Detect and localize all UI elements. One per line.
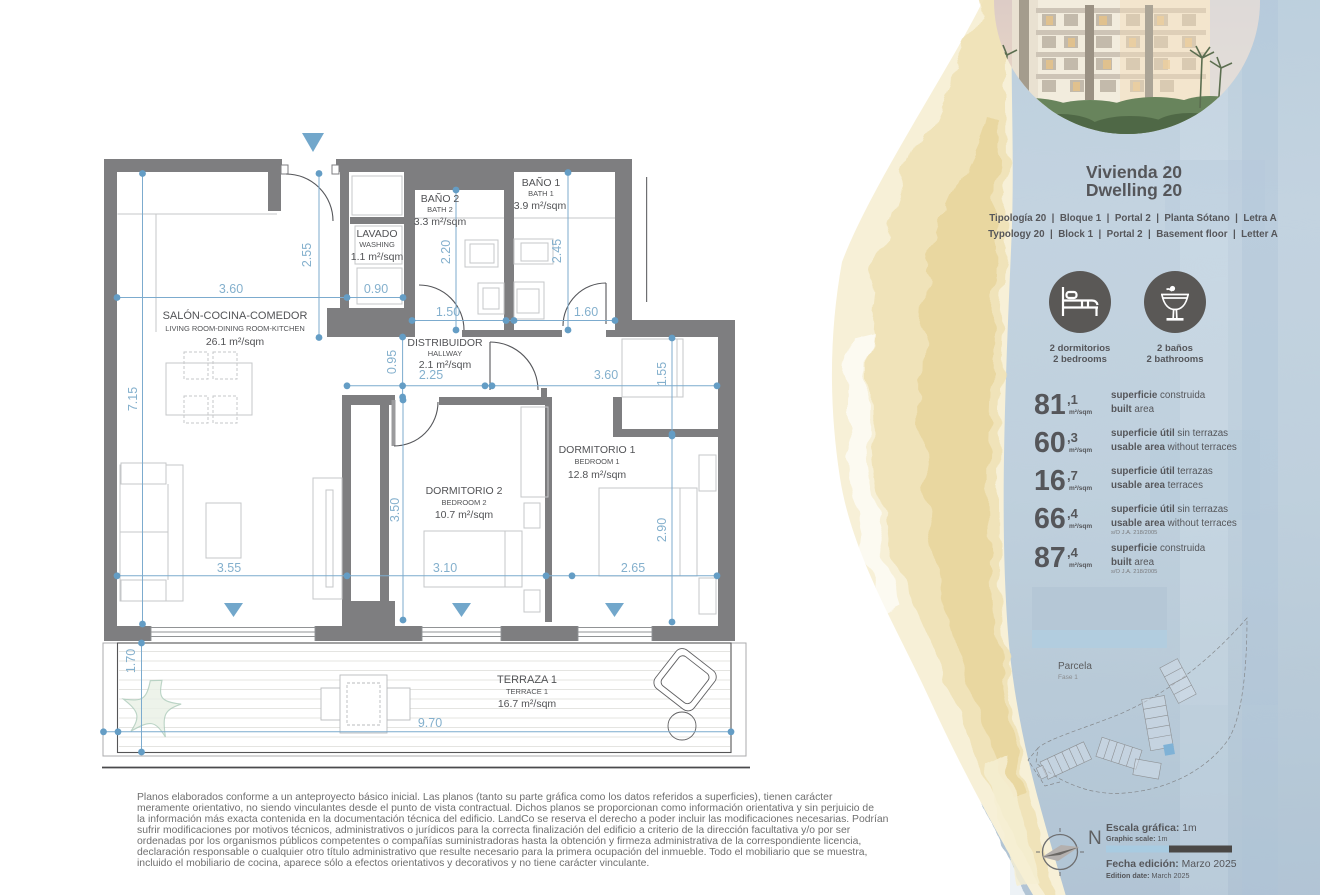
svg-text:BEDROOM 2: BEDROOM 2	[441, 498, 486, 507]
svg-text:3.55: 3.55	[217, 561, 241, 575]
svg-text:Typology 20 | Block 1 | Po: Typology 20 | Block 1 | Portal 2 | Basem…	[988, 229, 1278, 240]
svg-text:3.50: 3.50	[388, 498, 402, 522]
svg-text:Parcela: Parcela	[1058, 661, 1092, 672]
svg-text:3.3 m²/sqm: 3.3 m²/sqm	[414, 216, 467, 228]
svg-text:1.55: 1.55	[655, 362, 669, 386]
svg-text:N: N	[1088, 828, 1102, 849]
svg-text:built area: built area	[1111, 557, 1155, 568]
svg-text:BAÑO 1: BAÑO 1	[522, 176, 561, 189]
svg-text:87: 87	[1034, 542, 1066, 574]
svg-text:DORMITORIO 2: DORMITORIO 2	[426, 485, 503, 497]
svg-text:superficie construida: superficie construida	[1111, 543, 1206, 554]
svg-text:m²/sqm: m²/sqm	[1069, 485, 1092, 492]
svg-text:2.65: 2.65	[621, 561, 645, 575]
svg-text:LIVING ROOM-DINING ROOM-KITCHE: LIVING ROOM-DINING ROOM-KITCHEN	[165, 324, 305, 333]
svg-text:3.60: 3.60	[594, 368, 618, 382]
svg-text:HALLWAY: HALLWAY	[428, 349, 462, 358]
svg-text:12.8 m²/sqm: 12.8 m²/sqm	[568, 469, 627, 481]
svg-text:Tipología 20 | Bloque 1 |: Tipología 20 | Bloque 1 | Portal 2 | Pla…	[989, 213, 1277, 224]
svg-text:DORMITORIO 1: DORMITORIO 1	[559, 444, 636, 456]
svg-text:7.15: 7.15	[126, 387, 140, 411]
svg-text:0.95: 0.95	[385, 350, 399, 374]
svg-text:,3: ,3	[1067, 430, 1078, 445]
svg-text:s/O J.A. 218/2005: s/O J.A. 218/2005	[1111, 569, 1157, 575]
svg-text:3.10: 3.10	[433, 561, 457, 575]
svg-text:1.60: 1.60	[574, 305, 598, 319]
svg-text:1.70: 1.70	[124, 649, 138, 673]
svg-text:2.45: 2.45	[550, 239, 564, 263]
svg-text:2.20: 2.20	[439, 240, 453, 264]
svg-text:66: 66	[1034, 503, 1066, 535]
svg-text:2.55: 2.55	[300, 243, 314, 267]
svg-text:16.7 m²/sqm: 16.7 m²/sqm	[498, 698, 557, 710]
svg-text:,7: ,7	[1067, 468, 1078, 483]
svg-text:built area: built area	[1111, 404, 1155, 415]
svg-text:1.50: 1.50	[436, 305, 460, 319]
svg-text:s/O J.A. 218/2005: s/O J.A. 218/2005	[1111, 530, 1157, 536]
svg-text:declaración responsable o cual: declaración responsable o cualquier otro…	[137, 847, 867, 858]
svg-text:usable area terraces: usable area terraces	[1111, 480, 1203, 491]
svg-text:2.90: 2.90	[655, 518, 669, 542]
svg-text:LAVADO: LAVADO	[356, 228, 397, 240]
svg-text:10.7 m²/sqm: 10.7 m²/sqm	[435, 509, 494, 521]
svg-text:BATH 1: BATH 1	[528, 189, 554, 198]
svg-text:2 baños: 2 baños	[1157, 343, 1193, 354]
svg-text:superficie construida: superficie construida	[1111, 390, 1206, 401]
svg-text:Vivienda 20: Vivienda 20	[1086, 162, 1182, 182]
svg-text:Edition date: March 2025: Edition date: March 2025	[1106, 871, 1189, 880]
svg-text:Planos elaborados conforme a u: Planos elaborados conforme a un anteproy…	[137, 792, 833, 803]
svg-text:incluido el mobiliario de coci: incluido el mobiliario de cocina, aparec…	[137, 858, 649, 869]
svg-text:,4: ,4	[1067, 506, 1079, 521]
svg-text:9.70: 9.70	[418, 716, 442, 730]
svg-text:m²/sqm: m²/sqm	[1069, 409, 1092, 416]
svg-text:DISTRIBUIDOR: DISTRIBUIDOR	[407, 337, 483, 349]
svg-text:1.1 m²/sqm: 1.1 m²/sqm	[351, 251, 404, 263]
svg-text:m²/sqm: m²/sqm	[1069, 447, 1092, 454]
svg-text:16: 16	[1034, 465, 1066, 497]
svg-text:ordenadas por los organismos p: ordenadas por los organismos públicos co…	[137, 836, 861, 847]
svg-text:3.60: 3.60	[219, 282, 243, 296]
svg-text:0.90: 0.90	[364, 282, 388, 296]
svg-text:la información más exacta cont: la información más exacta contenida en l…	[137, 814, 889, 825]
svg-text:3.9 m²/sqm: 3.9 m²/sqm	[514, 200, 567, 212]
svg-text:26.1 m²/sqm: 26.1 m²/sqm	[206, 336, 265, 348]
svg-text:Dwelling 20: Dwelling 20	[1086, 180, 1183, 200]
svg-text:meramente orientativo, no sien: meramente orientativo, no siendo vincula…	[137, 803, 874, 814]
svg-text:,1: ,1	[1067, 392, 1078, 407]
svg-text:Fecha edición: Marzo 2025: Fecha edición: Marzo 2025	[1106, 859, 1237, 870]
svg-text:BATH 2: BATH 2	[427, 205, 453, 214]
svg-text:2 bathrooms: 2 bathrooms	[1146, 354, 1203, 365]
svg-text:TERRACE 1: TERRACE 1	[506, 687, 548, 696]
svg-text:usable area without terraces: usable area without terraces	[1111, 518, 1237, 529]
svg-text:60: 60	[1034, 427, 1066, 459]
svg-text:usable area without terraces: usable area without terraces	[1111, 442, 1237, 453]
svg-text:m²/sqm: m²/sqm	[1069, 562, 1092, 569]
svg-text:superficie útil sin terrazas: superficie útil sin terrazas	[1111, 428, 1228, 439]
svg-text:superficie útil terrazas: superficie útil terrazas	[1111, 466, 1213, 477]
svg-text:SALÓN-COCINA-COMEDOR: SALÓN-COCINA-COMEDOR	[163, 309, 308, 322]
svg-text:2.1 m²/sqm: 2.1 m²/sqm	[419, 359, 472, 371]
svg-text:m²/sqm: m²/sqm	[1069, 523, 1092, 530]
svg-text:Fase 1: Fase 1	[1058, 674, 1078, 681]
svg-text:Escala gráfica: 1m: Escala gráfica: 1m	[1106, 823, 1197, 834]
svg-text:WASHING: WASHING	[359, 240, 395, 249]
svg-text:Graphic scale: 1m: Graphic scale: 1m	[1106, 834, 1168, 843]
svg-text:superficie útil sin terrazas: superficie útil sin terrazas	[1111, 504, 1228, 515]
svg-text:81: 81	[1034, 389, 1066, 421]
svg-text:BEDROOM 1: BEDROOM 1	[574, 457, 619, 466]
svg-text:TERRAZA 1: TERRAZA 1	[497, 674, 557, 686]
svg-text:BAÑO 2: BAÑO 2	[421, 192, 460, 205]
svg-text:sufrir modificaciones por moti: sufrir modificaciones por motivos técnic…	[137, 825, 851, 836]
svg-text:2 dormitorios: 2 dormitorios	[1050, 343, 1111, 354]
svg-text:2 bedrooms: 2 bedrooms	[1053, 354, 1107, 365]
svg-text:,4: ,4	[1067, 545, 1079, 560]
